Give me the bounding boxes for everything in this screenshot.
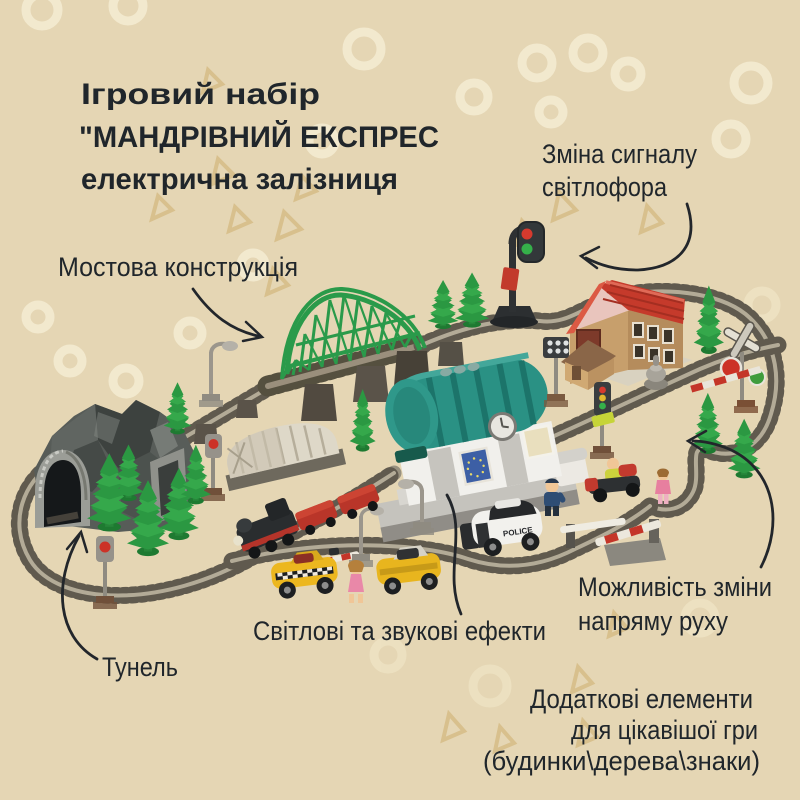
svg-text:Тунель: Тунель: [102, 652, 178, 682]
svg-text:світлофора: світлофора: [542, 172, 668, 202]
svg-text:Мостова конструкція: Мостова конструкція: [58, 252, 298, 282]
svg-text:напряму руху: напряму руху: [578, 606, 728, 636]
svg-text:для цікавішої гри: для цікавішої гри: [571, 715, 758, 745]
svg-text:"МАНДРІВНИЙ ЕКСПРЕС: "МАНДРІВНИЙ ЕКСПРЕС: [79, 120, 439, 154]
svg-text:Додаткові елементи: Додаткові елементи: [530, 684, 753, 714]
svg-text:електрична залізниця: електрична залізниця: [81, 163, 398, 196]
svg-text:Зміна сигналу: Зміна сигналу: [542, 139, 697, 169]
svg-text:Світлові та звукові ефекти: Світлові та звукові ефекти: [253, 616, 546, 646]
svg-text:Ігровий набір: Ігровий набір: [81, 78, 320, 111]
svg-text:(будинки\дерева\знаки): (будинки\дерева\знаки): [483, 746, 760, 776]
svg-text:Можливість зміни: Можливість зміни: [578, 572, 772, 602]
